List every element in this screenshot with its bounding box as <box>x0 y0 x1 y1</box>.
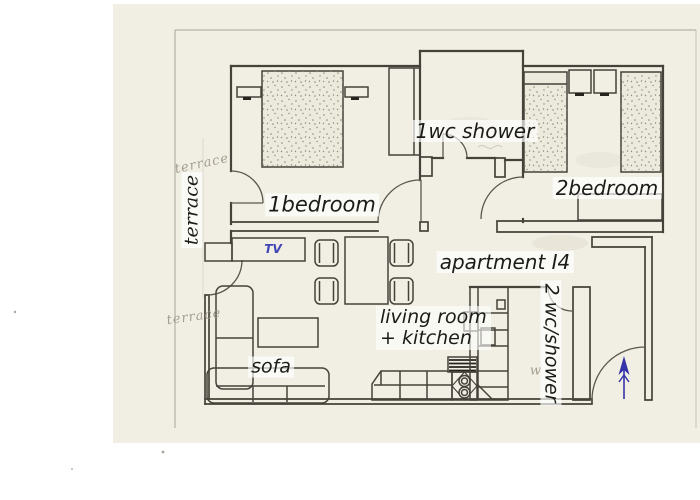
label-terrace: terrace <box>182 172 203 248</box>
label-tv: TV <box>264 242 281 256</box>
label-living-line1: living room <box>380 307 487 328</box>
label-living-line2: + kitchen <box>380 328 487 349</box>
label-living-kitchen: living room + kitchen <box>376 306 491 350</box>
label-bedroom2: 2bedroom <box>553 177 662 199</box>
label-wc2: 2 wc/shower <box>541 280 562 405</box>
label-bedroom1: 1bedroom <box>265 193 379 216</box>
label-apartment: apartment I4 <box>437 251 574 273</box>
floor-plan-drawing <box>0 0 700 500</box>
label-wc1: 1wc shower <box>413 120 538 142</box>
pencil-note-w: w <box>530 364 542 379</box>
floor-plan-scan: 1bedroom 2bedroom 1wc shower apartment I… <box>0 0 700 500</box>
label-sofa: sofa <box>248 357 294 378</box>
